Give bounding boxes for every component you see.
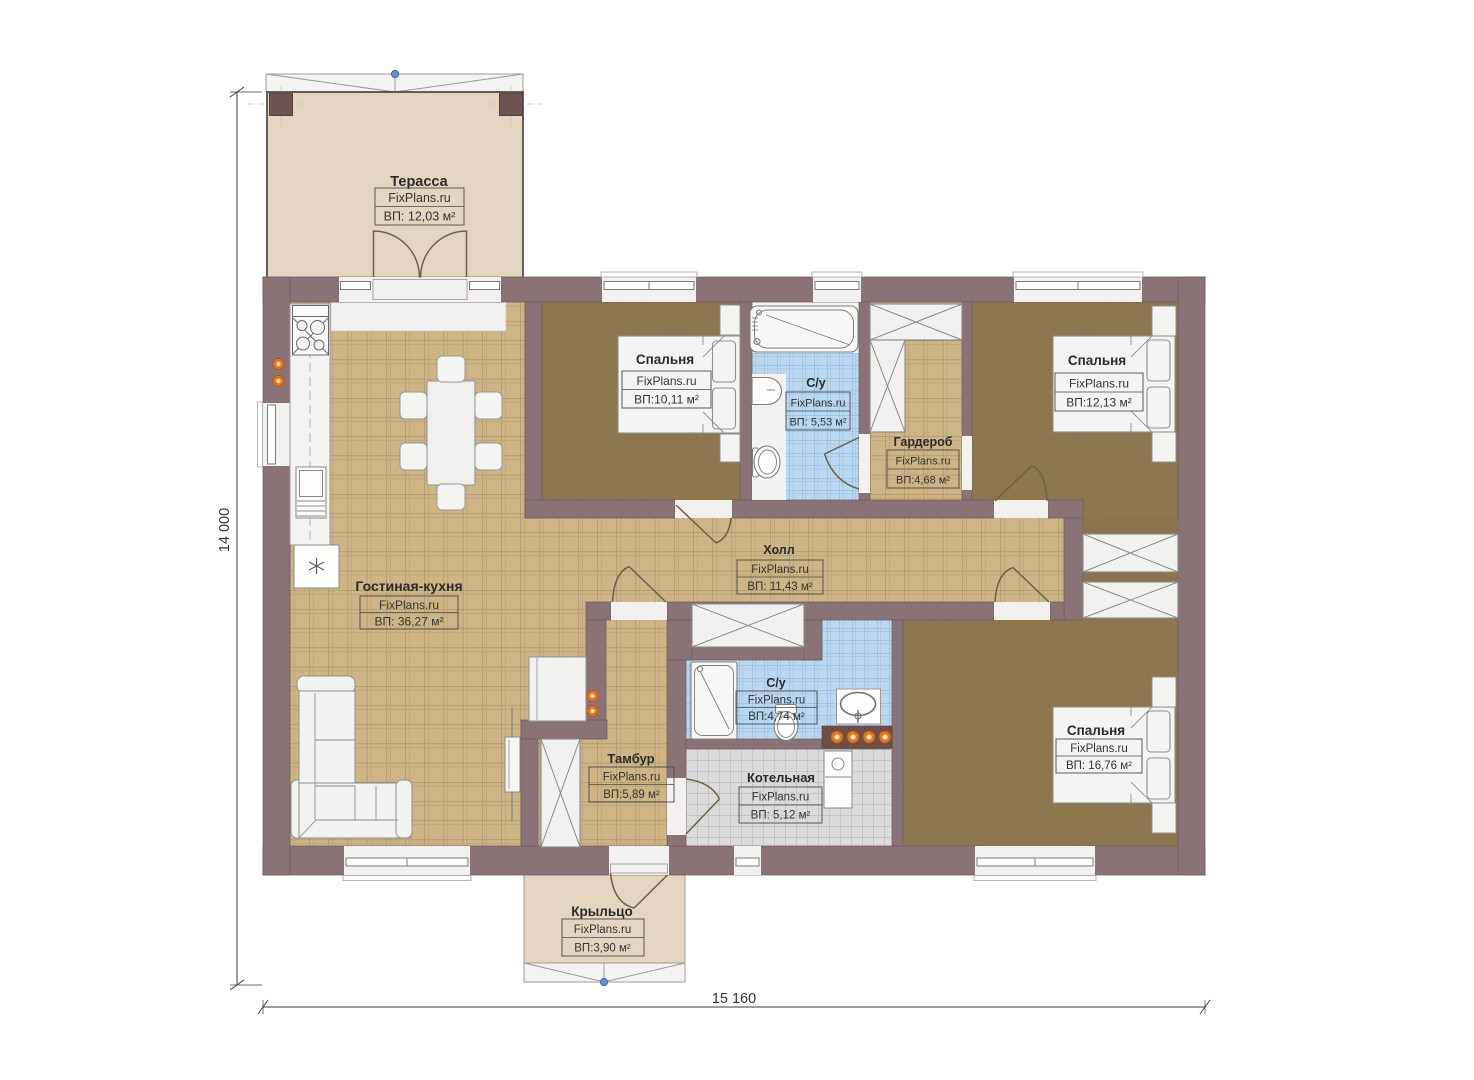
svg-text:ВП:4,74 м²: ВП:4,74 м² [748,711,805,723]
svg-text:Спальня: Спальня [1067,723,1125,738]
svg-text:ВП: 11,43 м²: ВП: 11,43 м² [747,581,812,593]
svg-text:FixPlans.ru: FixPlans.ru [603,772,661,784]
svg-text:FixPlans.ru: FixPlans.ru [1069,377,1129,391]
svg-text:ВП:5,89 м²: ВП:5,89 м² [603,789,660,801]
svg-text:Котельная: Котельная [747,770,815,785]
svg-text:ВП: 5,53 м²: ВП: 5,53 м² [789,417,846,429]
svg-text:ВП: 16,76 м²: ВП: 16,76 м² [1066,760,1132,772]
svg-text:ВП: 36,27 м²: ВП: 36,27 м² [375,615,444,629]
svg-text:ВП:12,13 м²: ВП:12,13 м² [1066,396,1132,410]
svg-text:С/у: С/у [806,376,826,390]
svg-text:Тамбур: Тамбур [607,751,654,766]
svg-text:FixPlans.ru: FixPlans.ru [636,374,696,388]
svg-text:ВП: 5,12 м²: ВП: 5,12 м² [751,810,811,822]
svg-text:Спальня: Спальня [636,352,694,367]
svg-text:Спальня: Спальня [1068,353,1126,368]
svg-text:ВП:4,68 м²: ВП:4,68 м² [896,475,950,487]
svg-text:FixPlans.ru: FixPlans.ru [752,792,810,804]
svg-text:Холл: Холл [763,543,794,557]
svg-text:14 000: 14 000 [217,508,233,552]
svg-text:FixPlans.ru: FixPlans.ru [388,191,451,205]
svg-text:Гостиная-кухня: Гостиная-кухня [355,578,462,594]
svg-text:15 160: 15 160 [712,991,756,1007]
svg-text:FixPlans.ru: FixPlans.ru [751,564,809,576]
svg-text:С/у: С/у [766,676,786,690]
svg-text:FixPlans.ru: FixPlans.ru [574,924,632,936]
svg-text:Крыльцо: Крыльцо [571,904,632,919]
svg-text:ВП:3,90 м²: ВП:3,90 м² [574,943,631,955]
svg-text:FixPlans.ru: FixPlans.ru [895,456,950,468]
svg-text:ВП:10,11 м²: ВП:10,11 м² [634,393,699,407]
svg-text:Гардероб: Гардероб [893,435,952,449]
svg-text:ВП: 12,03 м²: ВП: 12,03 м² [384,210,456,224]
svg-text:FixPlans.ru: FixPlans.ru [748,695,806,707]
svg-text:FixPlans.ru: FixPlans.ru [379,598,439,612]
svg-text:FixPlans.ru: FixPlans.ru [790,398,845,410]
svg-text:FixPlans.ru: FixPlans.ru [1070,743,1128,755]
